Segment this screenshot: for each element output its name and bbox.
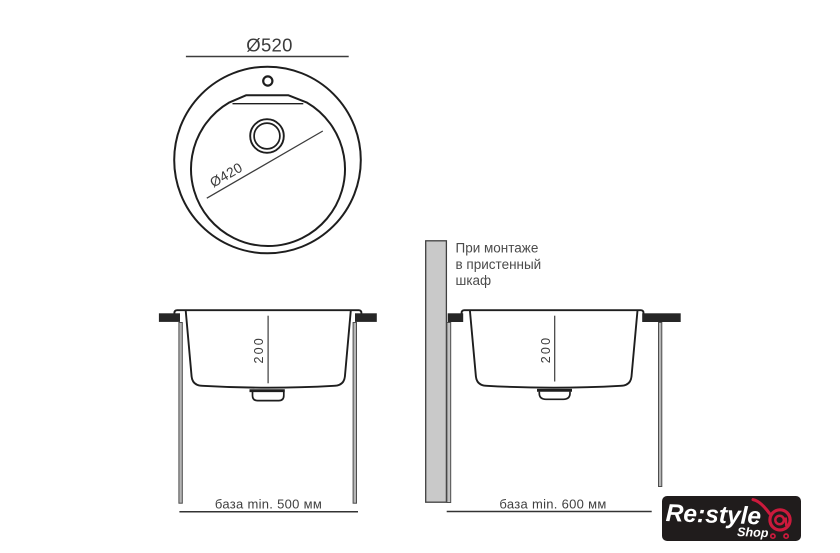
svg-text:200: 200	[539, 336, 553, 363]
svg-text:Shop: Shop	[737, 525, 769, 540]
svg-text:Ø520: Ø520	[246, 35, 292, 56]
svg-text:база min. 500 мм: база min. 500 мм	[215, 497, 322, 512]
svg-text:база min. 600 мм: база min. 600 мм	[499, 496, 606, 511]
svg-text:в пристенный: в пристенный	[456, 257, 542, 272]
svg-text:200: 200	[252, 336, 266, 363]
svg-text:При монтаже: При монтаже	[456, 241, 539, 256]
svg-text:шкаф: шкаф	[456, 273, 492, 288]
